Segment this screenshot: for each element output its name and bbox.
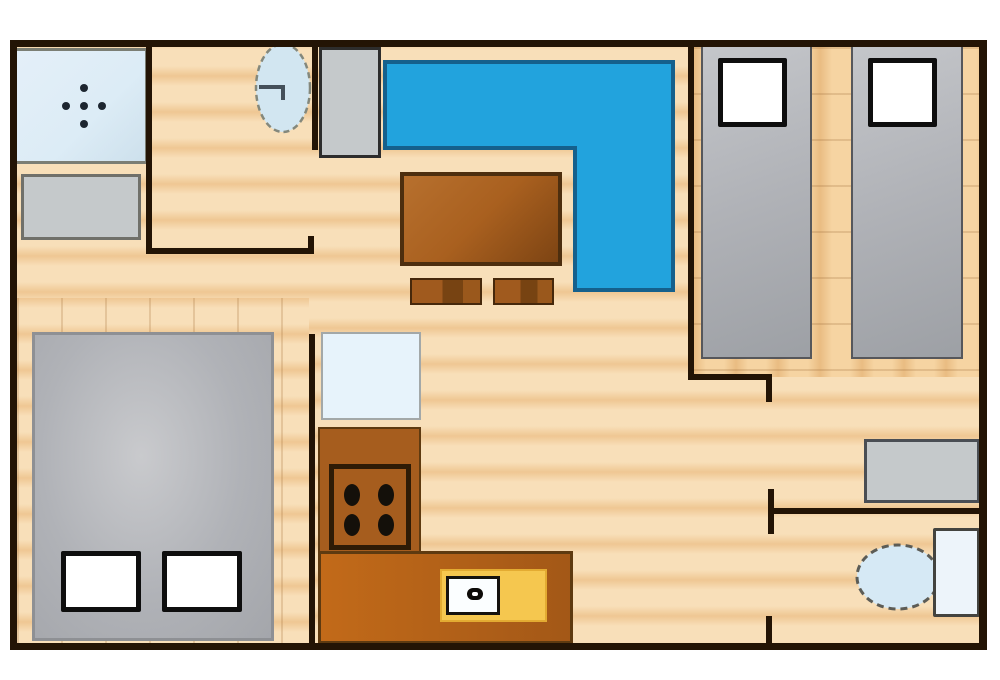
stool [410,278,482,305]
floor-plan [0,0,1000,680]
toilet-tank [933,528,980,617]
wall-bathroom1-bottom [146,248,314,254]
wall-outer-right [979,40,987,650]
wall-bathroom2-stub-lower [766,616,772,644]
wall-bathroom1-right [146,42,152,254]
stove [329,464,411,550]
single-bed [701,45,812,359]
coffee-table [400,172,562,266]
wall-outer-bottom [10,643,987,650]
pillow [718,58,787,127]
pillow [162,551,242,612]
wall-bathroom2-stub-upper [768,489,774,534]
faucet-icon [467,588,483,600]
wall-entry [312,42,318,150]
single-bed [851,45,963,359]
pillow [868,58,937,127]
wall-bedroom-right-door-stub [766,374,772,402]
wall-bedroom-right-left [688,42,694,380]
wall-bedroom-right-bottom [688,374,772,380]
wall-bathroom1-door-stub [308,236,314,254]
wardrobe-cabinet [319,47,381,158]
double-bed [32,332,274,641]
dresser [864,439,980,503]
wall-bathroom2-top [770,508,979,514]
wall-outer-left [10,40,17,650]
stool [493,278,554,305]
wall-outer-top [10,40,987,47]
pillow [61,551,141,612]
wall-kitchen-bedroom-divider [309,334,315,644]
wash-basin [252,40,316,140]
washing-machine [21,174,141,240]
shower-drain-dots-icon [60,82,108,130]
kitchen-table [321,332,421,420]
